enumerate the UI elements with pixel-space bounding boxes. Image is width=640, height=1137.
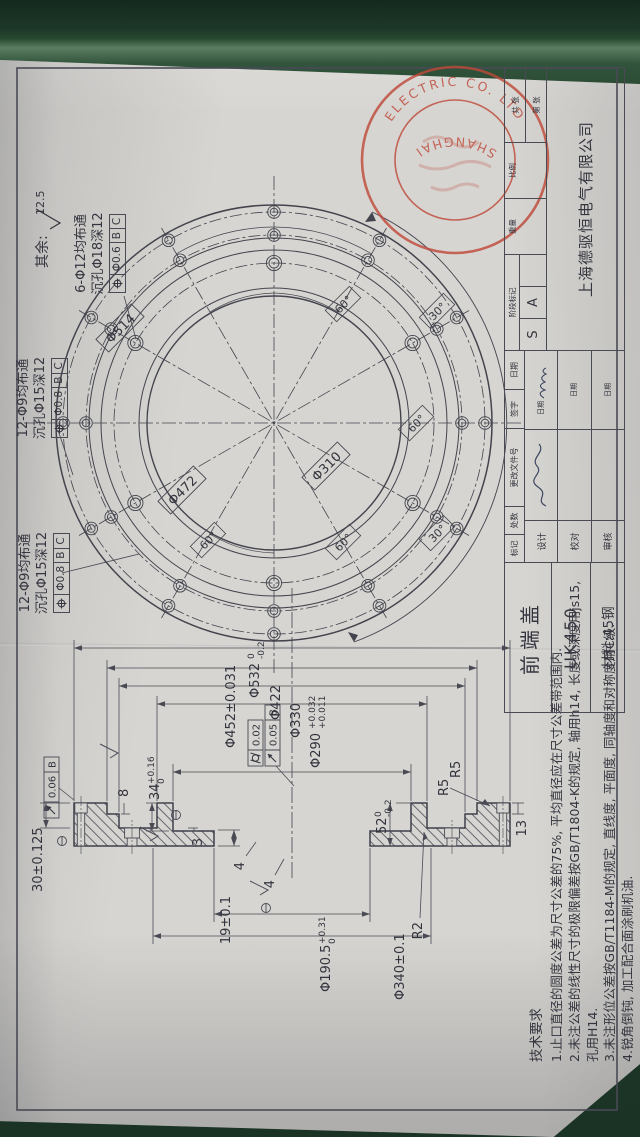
title-block-right-column: 阶段标记 S A 重量 比例 共 张 第 张 上海德驱恒电气有限公司 [505,68,624,350]
stage-mark-cell: 阶段标记 S A [505,254,546,350]
svg-text:0.02: 0.02 [252,724,263,746]
section-view: Φ532 0 -0.2 Φ452±0.031 Φ422 Φ330 Φ290 +0… [31,588,530,1000]
date-cell: 日期 [592,351,624,429]
cylindricity-symbol-icon [251,753,261,763]
svg-text:+0.16: +0.16 [147,756,157,784]
dim-52: 52 [375,817,390,834]
fcf-position: Φ0.6 B C [109,214,126,294]
callout-line1: 12-Φ9均布通 [16,328,33,468]
angle-label: 60° [197,529,220,552]
sheet-cells: 共 张 第 张 [505,68,546,142]
weight-label: 重量 [505,198,546,254]
runout-symbol-icon [268,754,276,762]
svg-text:Φ472: Φ472 [165,473,200,508]
dim-4b: 4 [263,880,278,888]
svg-text:+0.31: +0.31 [318,916,328,944]
date-label: 日期 [536,401,546,415]
callout-line1: 12-Φ9均布通 [18,498,35,648]
svg-text:0: 0 [157,778,167,784]
angle-label: 30° [426,300,449,323]
fcf-runout-bore: 0.05 B [265,705,280,766]
fcf-cylindricity: 0.02 [248,720,263,766]
svg-text:0.06: 0.06 [48,776,59,798]
sheet-number: 第 张 [526,68,546,142]
svg-text:0.05: 0.05 [269,724,280,746]
stage-mark-label: 阶段标记 [505,255,520,350]
rev-header: 标记 [505,534,524,562]
dim-34: 34 [148,783,163,800]
roughness-symbol-icon: 12.5 [32,189,64,235]
rev-header: 签字 [505,389,524,428]
signature-cell [525,429,557,520]
svg-text:12.5: 12.5 [34,191,47,216]
callout-6phi12: 6-Φ12均布通 沉孔Φ18深12 Φ0.6 B C [74,181,129,326]
date-cell: 日期 [525,351,557,429]
callout-line2: 沉孔Φ15深12 [35,498,52,648]
rev-header: 更改文件号 [505,428,524,506]
part-name: 前端盖 [505,563,552,712]
dim-8: 8 [117,789,132,797]
date-scribble [533,365,549,401]
runout-symbol-icon [47,806,55,814]
fcf-position: Φ0.8 B C [53,533,70,613]
signature-cell [558,429,590,520]
stage-mark-blank [520,255,546,286]
scale-label: 比例 [505,142,546,198]
row-label: 审核 [592,520,624,562]
dim-4a: 4 [233,862,248,870]
dim-r5a: R5 [437,779,452,796]
row-label: 校对 [558,520,590,562]
date-cell: 日期 [558,351,590,429]
svg-text:0: 0 [247,653,257,659]
svg-text:+0.011: +0.011 [318,696,328,729]
position-symbol-icon [112,278,123,289]
checker-row: 校对 日期 [558,351,591,562]
dim-phi340: Φ340±0.1 [393,933,408,1000]
position-symbol-icon [54,423,65,434]
stamp-arc-bottom: SHANGHAI [411,134,499,161]
position-symbol-icon [56,598,67,609]
dia-label-310: Φ310 [302,442,350,490]
svg-text:B: B [48,761,59,768]
signature-scribble [531,438,551,512]
dim-3: 3 [191,838,206,846]
rev-header: 处数 [505,506,524,534]
dim-phi290: Φ290 [309,733,324,768]
fcf-position: Φ0.8 B C [51,358,68,438]
title-block-revision-column: 标记 处数 更改文件号 签字 日期 设计 日期 [505,350,624,562]
general-roughness-note: 其余: 12.5 [32,189,64,268]
angle-label: 30° [426,522,449,545]
company-name: 上海德驱恒电气有限公司 [547,68,624,350]
dim-phi190: Φ190.5 [319,945,334,992]
svg-text:0: 0 [374,811,384,817]
roughness-prefix: 其余: [32,235,52,268]
svg-text:Φ310: Φ310 [309,449,344,484]
svg-text:+0.032: +0.032 [308,696,318,729]
svg-text:B: B [269,709,280,716]
svg-text:-0.2: -0.2 [257,641,267,659]
svg-text:0: 0 [328,938,338,944]
callout-line2: 沉孔Φ18深12 [91,181,108,326]
dim-r2: R2 [411,922,426,939]
title-block-name-column: 前端盖 UK450 材料:45钢 [505,562,624,712]
dim-30: 30±0.125 [31,827,46,892]
dim-19: 19±0.1 [219,896,234,944]
photo-background: Φ514 Φ472 Φ310 60° 60° 60° 60° 30° 30° [0,0,640,1137]
part-model: UK450 [552,563,590,712]
row-label: 设计 [525,520,557,562]
stage-mark-s: S [520,318,546,350]
approver-row: 审核 日期 [592,351,624,562]
dim-r5b: R5 [449,761,464,778]
drawing-canvas: Φ514 Φ472 Φ310 60° 60° 60° 60° 30° 30° [12,60,622,1118]
callout-12phi9-a: 12-Φ9均布通 沉孔Φ15深12 Φ0.8 B C [16,328,71,468]
rev-header: 日期 [505,351,524,389]
callout-line1: 6-Φ12均布通 [74,181,91,326]
sheet-total: 共 张 [505,68,526,142]
surface-finish-icon [100,744,268,895]
designer-row: 设计 日期 [525,351,558,562]
dia-label-472: Φ472 [158,466,206,514]
stage-weight-scale-row: 阶段标记 S A 重量 比例 共 张 第 张 [505,68,547,350]
dim-phi452: Φ452±0.031 [224,665,239,748]
callout-line2: 沉孔Φ15深12 [33,328,50,468]
revision-header-row: 标记 处数 更改文件号 签字 日期 [505,351,525,562]
signature-cell [592,429,624,520]
callout-12phi9-b: 12-Φ9均布通 沉孔Φ15深12 Φ0.8 B C [18,498,73,648]
dim-phi532: Φ532 [248,663,263,698]
part-material: 材料:45钢 [591,563,624,712]
svg-text:-0.2: -0.2 [384,799,394,817]
dim-phi330: Φ330 [289,703,304,738]
title-block: 前端盖 UK450 材料:45钢 标记 处数 更改文件号 签字 日期 设计 [504,67,625,713]
stage-mark-a: A [520,286,546,318]
